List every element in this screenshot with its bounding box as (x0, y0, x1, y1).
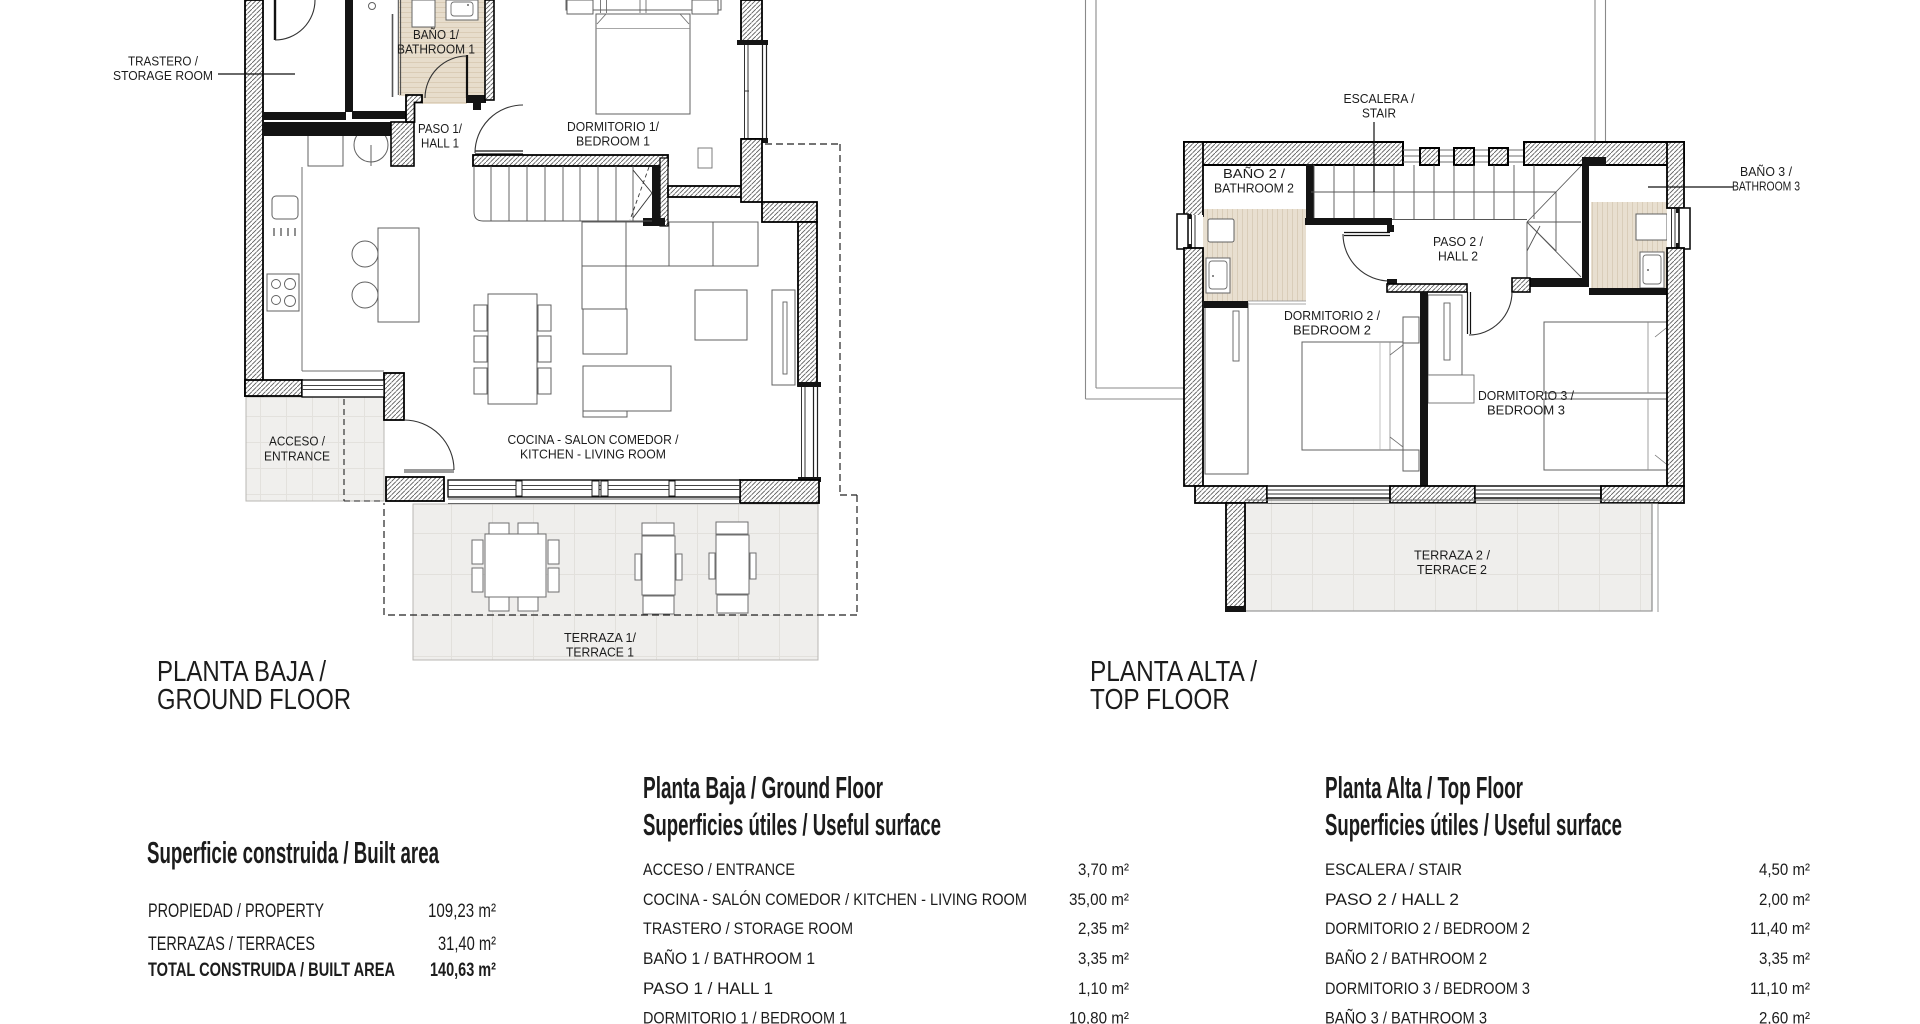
svg-text:Planta Alta / Top Floor: Planta Alta / Top Floor (1325, 770, 1523, 805)
svg-text:COCINA - SALÓN COMEDOR / KITCH: COCINA - SALÓN COMEDOR / KITCHEN - LIVIN… (643, 890, 1027, 909)
svg-text:PASO 2 / HALL 2: PASO 2 / HALL 2 (1325, 890, 1459, 909)
svg-text:PASO 1/: PASO 1/ (418, 122, 462, 136)
svg-text:DORMITORIO 1/: DORMITORIO 1/ (567, 120, 660, 134)
svg-text:TERRAZAS / TERRACES: TERRAZAS / TERRACES (148, 934, 315, 955)
svg-text:BEDROOM 1: BEDROOM 1 (576, 135, 650, 149)
svg-text:TOP FLOOR: TOP FLOOR (1090, 684, 1230, 716)
svg-text:STORAGE ROOM: STORAGE ROOM (113, 69, 213, 83)
svg-text:BAÑO 1 / BATHROOM 1: BAÑO 1 / BATHROOM 1 (643, 949, 815, 968)
svg-text:11,40 m²: 11,40 m² (1750, 919, 1810, 938)
svg-text:Superficies útiles / Useful su: Superficies útiles / Useful surface (1325, 807, 1622, 842)
svg-text:BAÑO 2 / BATHROOM 2: BAÑO 2 / BATHROOM 2 (1325, 949, 1487, 968)
svg-text:HALL 2: HALL 2 (1438, 250, 1478, 264)
svg-text:BATHROOM 3: BATHROOM 3 (1732, 180, 1800, 194)
svg-text:BAÑO 3 / BATHROOM 3: BAÑO 3 / BATHROOM 3 (1325, 1009, 1487, 1024)
svg-text:KITCHEN - LIVING ROOM: KITCHEN - LIVING ROOM (520, 447, 666, 462)
svg-text:TRASTERO / STORAGE ROOM: TRASTERO / STORAGE ROOM (643, 919, 853, 938)
svg-text:ESCALERA /: ESCALERA / (1344, 92, 1416, 106)
svg-text:HALL 1: HALL 1 (421, 137, 459, 151)
svg-text:109,23 m²: 109,23 m² (428, 901, 496, 922)
svg-text:TERRAZA 2 /: TERRAZA 2 / (1414, 549, 1491, 563)
svg-text:DORMITORIO 3 /: DORMITORIO 3 / (1478, 389, 1575, 403)
svg-text:PROPIEDAD / PROPERTY: PROPIEDAD / PROPERTY (148, 901, 324, 922)
svg-text:31,40 m²: 31,40 m² (438, 934, 496, 955)
svg-text:DORMITORIO 1 / BEDROOM 1: DORMITORIO 1 / BEDROOM 1 (643, 1009, 847, 1024)
svg-text:35,00 m²: 35,00 m² (1069, 890, 1129, 909)
svg-text:BAÑO 3 /: BAÑO 3 / (1740, 165, 1793, 179)
svg-text:TERRACE 1: TERRACE 1 (566, 646, 634, 660)
svg-text:1,10 m²: 1,10 m² (1078, 979, 1129, 998)
svg-text:11,10 m²: 11,10 m² (1750, 979, 1810, 998)
svg-text:3,35 m²: 3,35 m² (1759, 949, 1810, 968)
svg-text:2,00 m²: 2,00 m² (1759, 890, 1810, 909)
svg-text:4,50 m²: 4,50 m² (1759, 860, 1810, 879)
svg-text:140,63 m²: 140,63 m² (430, 960, 496, 981)
svg-text:ENTRANCE: ENTRANCE (264, 449, 330, 464)
svg-text:Superficies útiles / Useful su: Superficies útiles / Useful surface (643, 807, 941, 842)
svg-text:DORMITORIO 2 /: DORMITORIO 2 / (1284, 309, 1381, 323)
svg-text:TOTAL CONSTRUIDA / BUILT AREA: TOTAL CONSTRUIDA / BUILT AREA (148, 960, 395, 981)
svg-text:BAÑO 2 /: BAÑO 2 / (1223, 167, 1286, 181)
svg-text:3,35 m²: 3,35 m² (1078, 949, 1129, 968)
svg-text:Superficie construida / Built: Superficie construida / Built area (147, 835, 439, 870)
svg-text:BATHROOM 1: BATHROOM 1 (397, 43, 475, 57)
svg-text:BAÑO 1/: BAÑO 1/ (413, 28, 459, 42)
svg-text:TERRAZA 1/: TERRAZA 1/ (564, 631, 637, 645)
svg-text:PASO 2 /: PASO 2 / (1433, 235, 1484, 249)
svg-text:ESCALERA / STAIR: ESCALERA / STAIR (1325, 860, 1462, 879)
svg-text:DORMITORIO 2 / BEDROOM 2: DORMITORIO 2 / BEDROOM 2 (1325, 919, 1530, 938)
svg-text:2,60 m²: 2,60 m² (1759, 1009, 1810, 1024)
svg-text:COCINA - SALON COMEDOR /: COCINA - SALON COMEDOR / (508, 432, 679, 447)
svg-text:BATHROOM 2: BATHROOM 2 (1214, 182, 1294, 196)
svg-text:ACCESO /: ACCESO / (269, 434, 325, 449)
svg-text:PASO 1 / HALL 1: PASO 1 / HALL 1 (643, 979, 773, 998)
svg-text:10,80 m²: 10,80 m² (1069, 1009, 1129, 1024)
svg-text:ACCESO / ENTRANCE: ACCESO / ENTRANCE (643, 860, 795, 879)
svg-text:BEDROOM 3: BEDROOM 3 (1487, 404, 1565, 418)
svg-text:Planta Baja / Ground Floor: Planta Baja / Ground Floor (643, 770, 883, 805)
svg-text:TRASTERO /: TRASTERO / (128, 55, 198, 69)
svg-text:2,35 m²: 2,35 m² (1078, 919, 1129, 938)
svg-text:STAIR: STAIR (1362, 107, 1396, 121)
svg-text:3,70 m²: 3,70 m² (1078, 860, 1129, 879)
svg-text:BEDROOM 2: BEDROOM 2 (1293, 324, 1371, 338)
svg-text:GROUND FLOOR: GROUND FLOOR (157, 684, 351, 716)
svg-text:DORMITORIO 3 / BEDROOM 3: DORMITORIO 3 / BEDROOM 3 (1325, 979, 1530, 998)
svg-text:TERRACE 2: TERRACE 2 (1417, 563, 1487, 577)
